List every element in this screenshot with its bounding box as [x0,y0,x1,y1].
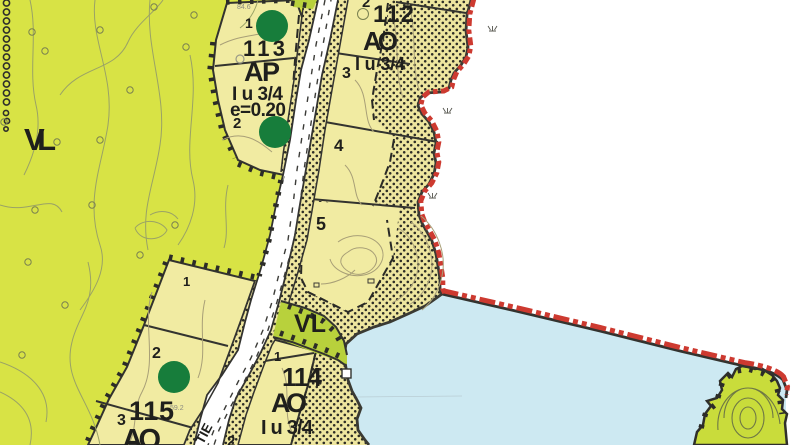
svg-text:I u 3/4: I u 3/4 [261,417,314,439]
svg-text:1: 1 [183,274,190,289]
svg-text:AO: AO [363,26,398,56]
svg-text:I u 3/4: I u 3/4 [355,54,405,74]
svg-text:AO: AO [122,424,161,445]
svg-text:3: 3 [342,65,351,82]
svg-text:4: 4 [334,136,344,155]
svg-text:84.6: 84.6 [237,4,251,11]
svg-text:112: 112 [373,1,414,28]
svg-text:115: 115 [129,396,174,426]
svg-text:VL: VL [24,122,56,157]
svg-text:5: 5 [316,214,326,234]
svg-text:AP: AP [244,57,280,87]
svg-text:2: 2 [362,0,370,11]
svg-text:1: 1 [245,15,253,31]
svg-text:2: 2 [233,115,241,132]
svg-text:1: 1 [274,349,281,364]
svg-text:2: 2 [152,345,161,362]
svg-text:VL: VL [294,310,326,338]
svg-text:2: 2 [227,433,235,445]
svg-text:AO: AO [271,388,307,418]
